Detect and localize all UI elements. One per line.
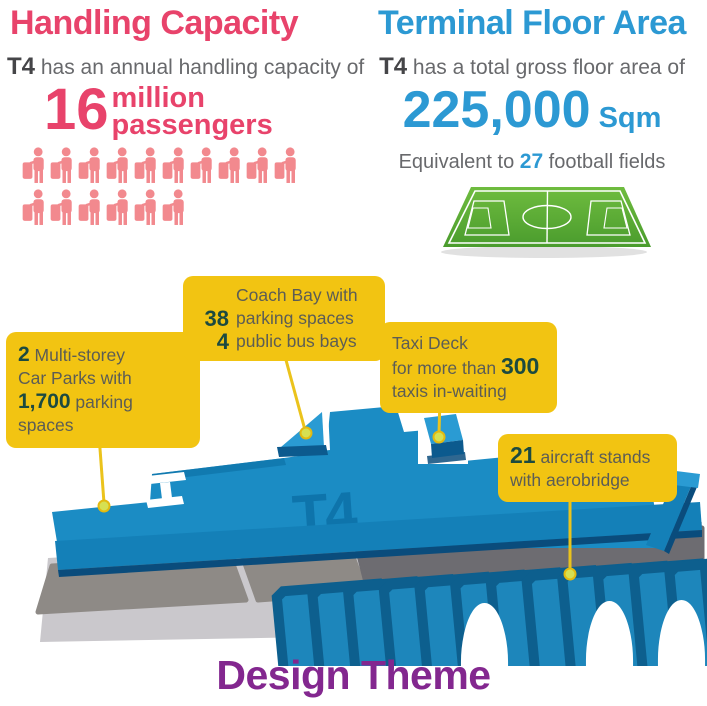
taxi-count: 300 xyxy=(501,353,539,379)
passenger-with-luggage-icon xyxy=(274,147,301,184)
t4-label: T4 xyxy=(379,53,407,80)
infographic-canvas: Handling Capacity T4 has an annual handl… xyxy=(0,0,707,706)
t4-label: T4 xyxy=(7,53,35,80)
passenger-with-luggage-icon xyxy=(162,189,189,226)
floor-area-subtitle: T4 has a total gross floor area of xyxy=(358,53,706,81)
taxi-leader-dot xyxy=(434,432,445,443)
passenger-with-luggage-icon xyxy=(50,147,77,184)
coach-text-1: parking spaces xyxy=(236,307,375,330)
handling-capacity-value: 16millionpassengers xyxy=(44,82,273,139)
coach-text-2: public bus bays xyxy=(236,330,375,353)
passenger-with-luggage-icon xyxy=(246,147,273,184)
aircraft-leader-dot xyxy=(565,569,576,580)
coach-parking-count: 38 xyxy=(193,307,229,330)
passenger-with-luggage-icon xyxy=(134,147,161,184)
pictograph-row xyxy=(22,189,301,226)
carpark-text-1: Multi-storey xyxy=(30,345,125,365)
callout-coach-bay: Coach Bay with 38 parking spaces 4 publi… xyxy=(183,276,385,361)
field-shadow xyxy=(441,246,647,258)
passenger-with-luggage-icon xyxy=(106,147,133,184)
floor-area-title: Terminal Floor Area xyxy=(358,4,706,43)
passenger-with-luggage-icon xyxy=(218,147,245,184)
passenger-count-number: 16 xyxy=(44,77,109,142)
equivalent-suffix: football fields xyxy=(543,151,665,173)
passenger-with-luggage-icon xyxy=(190,147,217,184)
floor-area-number: 225,000 xyxy=(403,81,591,139)
passenger-count-unit: millionpassengers xyxy=(112,82,273,139)
handling-capacity-title: Handling Capacity xyxy=(10,4,298,43)
handling-subtitle-text: has an annual handling capacity of xyxy=(35,56,364,79)
bus-bays-count: 4 xyxy=(193,330,229,353)
floor-area-subtitle-text: has a total gross floor area of xyxy=(407,56,685,79)
coach-text-0: Coach Bay with xyxy=(236,284,375,307)
passenger-with-luggage-icon xyxy=(22,189,49,226)
passenger-with-luggage-icon xyxy=(162,147,189,184)
taxi-text-2: taxis in-waiting xyxy=(392,381,507,401)
taxi-text-1: for more than xyxy=(392,358,501,378)
floor-area-equivalent: Equivalent to 27 football fields xyxy=(358,150,706,174)
coach-leader-dot xyxy=(301,428,312,439)
floor-area-value: 225,000 Sqm xyxy=(358,84,706,136)
carpark-leader-dot xyxy=(99,501,110,512)
aircraft-text-1: with aerobridge xyxy=(510,470,630,490)
carpark-count: 2 xyxy=(18,343,30,366)
callout-car-park: 2 Multi-storey Car Parks with 1,700 park… xyxy=(6,332,200,448)
floor-area-unit: Sqm xyxy=(591,102,662,134)
passenger-with-luggage-icon xyxy=(22,147,49,184)
passenger-with-luggage-icon xyxy=(50,189,77,226)
taxi-text-0: Taxi Deck xyxy=(392,333,468,353)
coach-leader-line xyxy=(283,349,305,430)
football-field-illustration xyxy=(440,181,654,261)
passenger-with-luggage-icon xyxy=(134,189,161,226)
passenger-with-luggage-icon xyxy=(106,189,133,226)
passenger-pictograph xyxy=(22,147,301,231)
unit-line-2: passengers xyxy=(112,109,273,141)
carpark-text-2: Car Parks with xyxy=(18,368,132,388)
design-theme-title: Design Theme xyxy=(0,652,707,699)
passenger-with-luggage-icon xyxy=(78,147,105,184)
pictograph-row xyxy=(22,147,301,184)
equivalent-number: 27 xyxy=(520,150,543,173)
callout-taxi-deck: Taxi Deck for more than 300 taxis in-wai… xyxy=(380,322,557,413)
callout-aircraft-stands: 21 aircraft stands with aerobridge xyxy=(498,434,677,502)
parking-spaces-count: 1,700 xyxy=(18,390,71,413)
passenger-with-luggage-icon xyxy=(78,189,105,226)
field-centerline xyxy=(547,191,548,243)
aircraft-text-0: aircraft stands xyxy=(536,447,651,467)
aircraft-stands-count: 21 xyxy=(510,442,536,468)
equivalent-prefix: Equivalent to xyxy=(399,151,520,173)
coach-num-blank xyxy=(193,284,229,307)
